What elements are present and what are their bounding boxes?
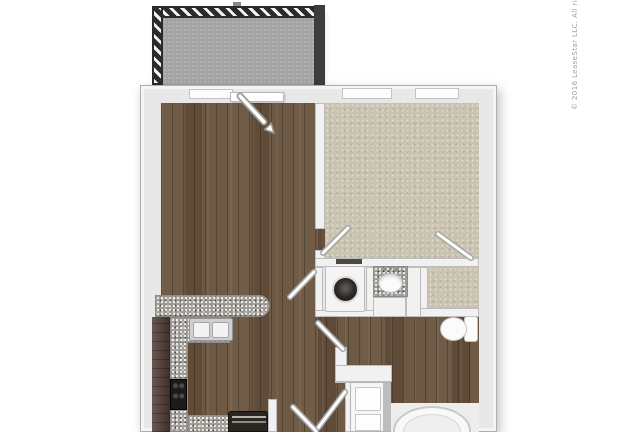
closet-carpet	[428, 267, 479, 308]
kitchen-sink-basin-left	[193, 322, 210, 338]
kitchen-cabinets	[152, 317, 170, 432]
vanity-alcove-wall-bottom	[373, 297, 406, 317]
bathtub-basin	[403, 414, 461, 432]
refrigerator-handles	[232, 416, 266, 418]
sliding-door-panel-2	[230, 92, 284, 102]
washer	[325, 266, 365, 312]
linen-cabinet-door-lower	[355, 414, 381, 431]
kitchen-sink-basin-right	[212, 322, 229, 338]
stove	[170, 379, 187, 410]
bedroom-carpet	[325, 103, 479, 258]
kitchen-counter-bottom	[188, 415, 230, 432]
refrigerator	[228, 411, 268, 432]
linen-cabinet-side-shadow	[383, 383, 391, 431]
balcony-railing-top-icon	[152, 6, 323, 18]
sliding-door-panel-1	[189, 89, 233, 99]
hallway-wall-sliver	[268, 399, 277, 432]
bedroom-window-2	[415, 88, 459, 99]
toilet-bowl	[440, 317, 467, 341]
bedroom-window-1	[342, 88, 392, 99]
bathroom-wall-horizontal	[335, 365, 392, 382]
floorplan-canvas: © 2016 LeaseStar LLC. All rights	[0, 0, 640, 432]
balcony	[150, 0, 326, 86]
balcony-floor	[155, 8, 321, 85]
washer-door-icon	[332, 276, 359, 303]
linen-cabinet-door-upper	[355, 387, 381, 411]
balcony-railing-left-icon	[152, 6, 163, 85]
wall-living-bedroom	[315, 103, 325, 229]
linen-cabinet	[350, 382, 391, 432]
vanity-sink	[378, 273, 403, 293]
copyright-watermark: © 2016 LeaseStar LLC. All rights	[571, 0, 584, 110]
kitchen-sink	[189, 318, 233, 341]
kitchen-counter-peninsula	[155, 295, 270, 317]
vanity-faucet-icon	[383, 268, 386, 271]
washer-control-panel	[336, 259, 362, 264]
balcony-divider-wall	[314, 5, 325, 86]
